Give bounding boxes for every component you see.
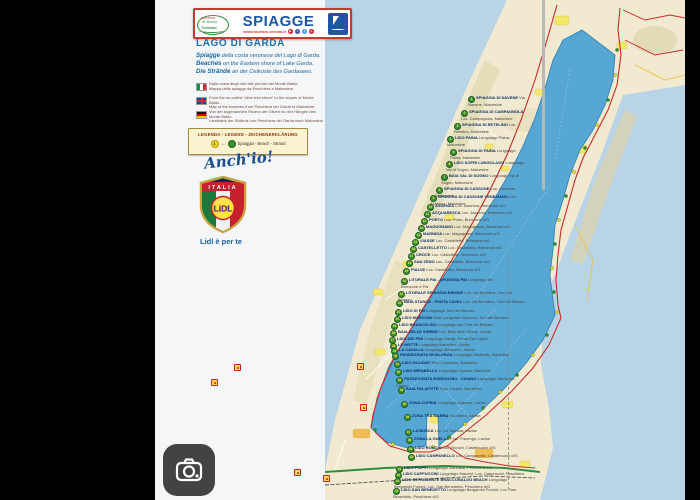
note-english: From the so-called “olive tree shore” to…: [196, 96, 326, 110]
beach-number-badge: 30: [392, 353, 399, 360]
sail-icon: [333, 16, 339, 25]
beach-list-item: 34BAIA PALAFITTE Fraz. Cisano, Bardolino: [398, 387, 526, 394]
page-title: LAGO DI GARDA: [196, 38, 285, 49]
arrow-icon: →: [221, 141, 226, 147]
beach-number-badge: 22: [396, 300, 403, 307]
youtube-icon[interactable]: ▶: [288, 29, 293, 34]
svg-text:LiDL: LiDL: [214, 204, 233, 214]
beach-list-item: 3SPIAGGIA DI RETELINO Loc. Retelino, Mal…: [454, 123, 526, 135]
beach-number-badge: 39: [407, 446, 414, 453]
beach-number-badge: 40: [408, 454, 415, 461]
intro-line-de: Die Strände an der Ostküste des Gardasee…: [196, 68, 312, 75]
beach-number-badge: 26: [390, 330, 397, 337]
camera-icon: [174, 455, 204, 485]
intro-line-it: Spiagge della costa veronese del Lago di…: [196, 52, 321, 59]
italy-flag-icon: [196, 83, 207, 91]
left-letterbox: [0, 0, 155, 500]
lidl-store-marker: [211, 379, 218, 386]
camera-lens-button[interactable]: [163, 444, 215, 496]
uk-flag-icon: [196, 97, 207, 105]
logo-swoosh: [199, 28, 225, 33]
beach-number-badge: 36: [404, 414, 411, 421]
svg-text:ITALIA: ITALIA: [208, 185, 237, 191]
lidl-store-marker: [357, 363, 364, 370]
provincia-verona-logo: provincia di Verona Turismo: [197, 14, 229, 34]
beach-list-item: 32LIDO MIRABELLO Lungolago Cipriani, Bar…: [395, 369, 526, 376]
beach-list-item: 7BAIA VAL DI SOGNO Lungolago Val di Sogn…: [441, 174, 526, 186]
legend-label: Spiaggia - Beach - Strand: [238, 141, 286, 146]
lidl-italia-shield-logo: ITALIA LiDL: [197, 175, 249, 240]
beach-number-badge: 18: [406, 260, 413, 267]
twitter-icon[interactable]: t: [302, 29, 307, 34]
beach-number-badge: 23: [395, 309, 402, 316]
lidl-store-marker: [360, 404, 367, 411]
note-german: Von der sogenannten Riviera der Oliven z…: [196, 110, 326, 124]
beach-number-badge: 32: [395, 369, 402, 376]
note-italian: Dalla costa degli olivi alle pendici del…: [196, 82, 326, 91]
beach-number-badge: 31: [394, 361, 401, 368]
lidl-store-marker: [323, 475, 330, 482]
facebook-icon[interactable]: f: [295, 29, 300, 34]
pinterest-icon[interactable]: p: [309, 29, 314, 34]
lidl-tagline: Lidl è per te: [200, 237, 242, 246]
lidl-store-marker: [294, 469, 301, 476]
beach-number-badge: 37: [405, 429, 412, 436]
website-url[interactable]: www.tourism.verona.it: [243, 29, 286, 34]
beach-list-item: 1SPIAGGIA DI NAVENE Via Navene, Malcesin…: [468, 96, 526, 108]
beach-list-item: 20LITORALE PAI - SPIAGGIA PAI Lungolago …: [401, 278, 501, 290]
sail-logo: [328, 13, 348, 35]
spiagge-banner: provincia di Verona Turismo SPIAGGE www.…: [193, 8, 352, 39]
beach-list-item: 5SPIAGGIA DI PAINA Lungolago Paina, Malc…: [450, 149, 526, 161]
numbered-marker-icon: 1: [211, 140, 219, 148]
beach-marker-icon: [228, 140, 236, 148]
beach-number-badge: 19: [403, 268, 410, 275]
beach-number-badge: 35: [401, 401, 408, 408]
lidl-store-marker: [234, 364, 241, 371]
beach-list-item: 22BAIA STANCA - PUNTA CAVAL Loc. Val Bre…: [396, 300, 526, 307]
map-fold-credits: [508, 252, 509, 490]
germany-flag-icon: [196, 111, 207, 119]
intro-line-en: Beaches on the Eastern shore of Lake Gar…: [196, 60, 314, 67]
beach-list-item: 6LIDO SOPRI LUNGOLAGO Lungolago Val di S…: [446, 161, 526, 173]
legend-title: LEGENDA - LEGEND - ZEICHENERKLÄRUNG: [189, 132, 307, 137]
beach-list-item: 4LIDO PAINA Lungolago Paina, Malcesine: [447, 136, 526, 148]
beach-list-item: 30PASSEGGIATA RIVALUNGA Lungolago Mirabe…: [392, 353, 526, 360]
scrollbar[interactable]: [542, 0, 545, 190]
beach-number-badge: 34: [398, 387, 405, 394]
beach-list-item: 44LIDO SAN BENEDETTO Lungolago Bergamini…: [393, 488, 526, 500]
beach-number-badge: 38: [406, 437, 413, 444]
image-viewer: 1SPIAGGIA DI NAVENE Via Navene, Malcesin…: [0, 0, 700, 500]
banner-title: SPIAGGE: [229, 14, 328, 29]
beach-list-item: 2SPIAGGIA DI CAMPAGNOLA Loc. Campagnola,…: [461, 110, 526, 122]
beach-number-badge: 25: [391, 323, 398, 330]
beach-list-item: 31LIDO HOLIDAY Riva Cornicello, Bardolin…: [394, 361, 526, 368]
